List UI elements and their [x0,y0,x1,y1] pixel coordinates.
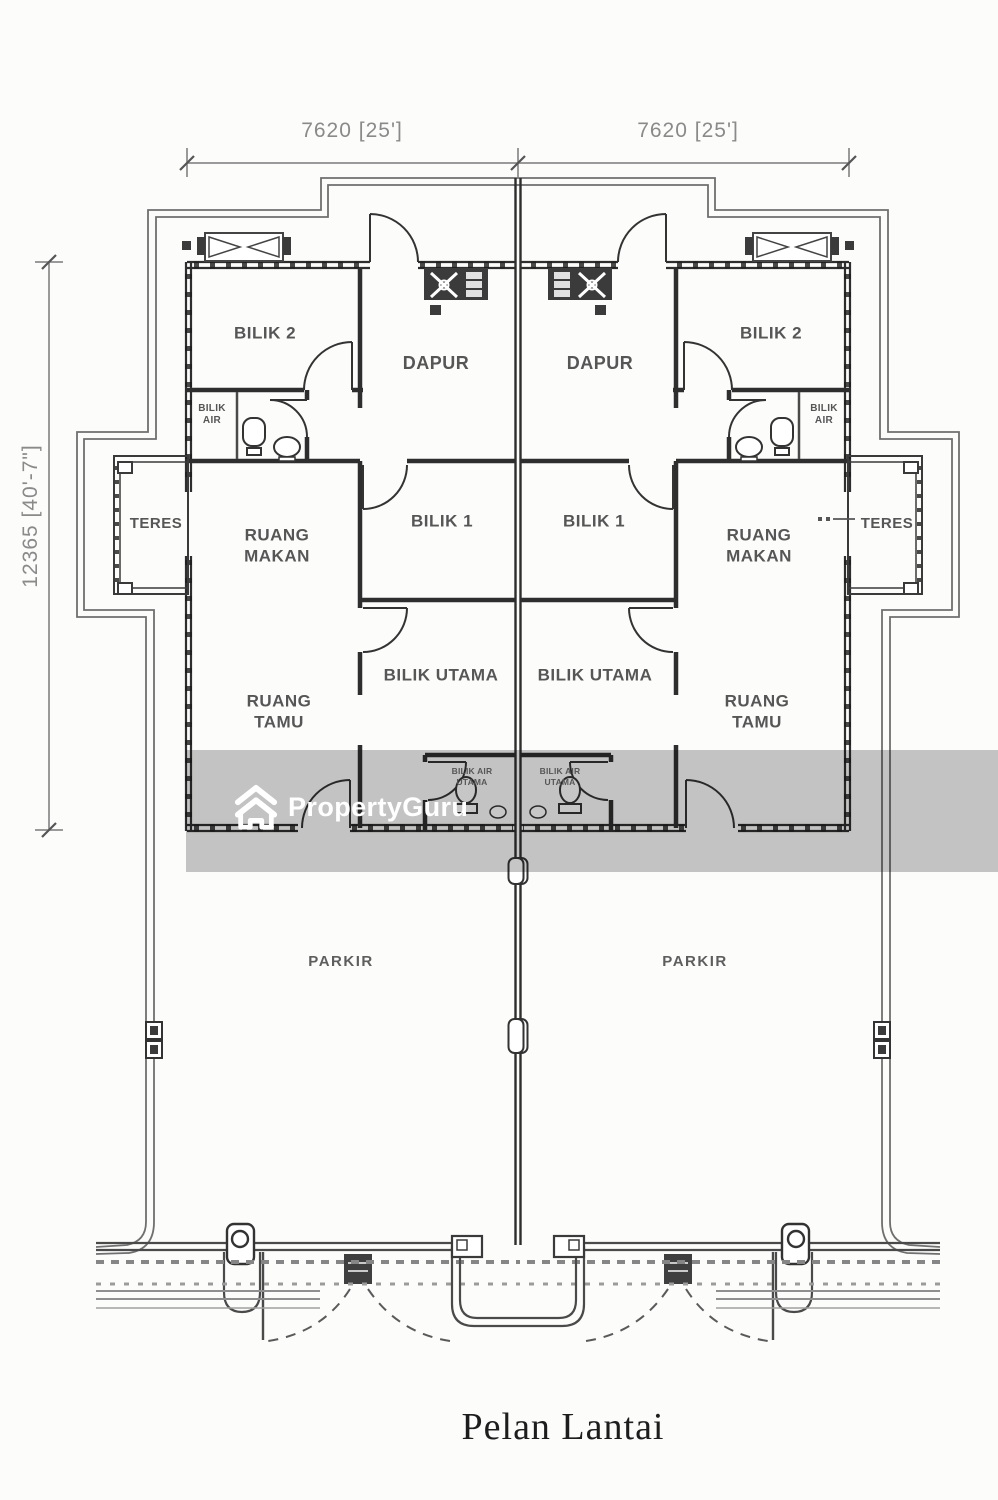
louvre-window-icon [182,233,291,261]
sink-icon [274,437,300,461]
room-label-bilik2-right: BILIK 2 [740,324,802,345]
dimension-annotations [35,148,856,837]
room-label-bilik-air-left: BILIK AIR [198,403,226,427]
dim-width-right: 7620 [25'] [637,119,739,143]
toilet-icon [243,418,265,455]
room-label-ruang-tamu-left: RUANG TAMU [247,691,312,732]
room-label-teres-right: TERES [861,515,914,533]
floor-plan-page: PropertyGuru 7620 [25'] 7620 [25'] 12365… [0,0,998,1500]
room-label-bilik-utama-left: BILIK UTAMA [384,666,499,687]
room-label-ruang-makan-left: RUANG MAKAN [244,525,310,566]
room-label-bilik-air-right: BILIK AIR [810,403,838,427]
propertyguru-logo-icon [233,782,279,832]
meter-box-icon [146,1022,162,1058]
room-label-parkir-left: PARKIR [308,953,373,971]
dim-width-left: 7620 [25'] [301,119,403,143]
room-label-ruang-makan-right: RUANG MAKAN [726,525,792,566]
room-label-bilik1-left: BILIK 1 [411,512,473,533]
fence-and-gate [96,1224,518,1341]
drawing-title: Pelan Lantai [462,1405,665,1449]
room-label-teres-left: TERES [130,515,183,533]
room-label-bilik-air-utama-right: BILIK AIR UTAMA [540,766,581,788]
room-label-bilik1-right: BILIK 1 [563,512,625,533]
watermark-brand-text: PropertyGuru [288,792,468,823]
room-label-bilik2-left: BILIK 2 [234,324,296,345]
room-label-bilik-air-utama-left: BILIK AIR UTAMA [452,766,493,788]
room-label-dapur-left: DAPUR [403,353,470,375]
room-label-parkir-right: PARKIR [662,953,727,971]
wall-hatching [117,265,513,828]
watermark: PropertyGuru [233,782,468,832]
stove-symbol [424,268,488,315]
room-label-dapur-right: DAPUR [567,353,634,375]
dim-height-left: 12365 [40'-7"] [19,444,43,587]
room-label-ruang-tamu-right: RUANG TAMU [725,691,790,732]
room-label-bilik-utama-right: BILIK UTAMA [538,666,653,687]
teres-leader-line [818,517,855,521]
